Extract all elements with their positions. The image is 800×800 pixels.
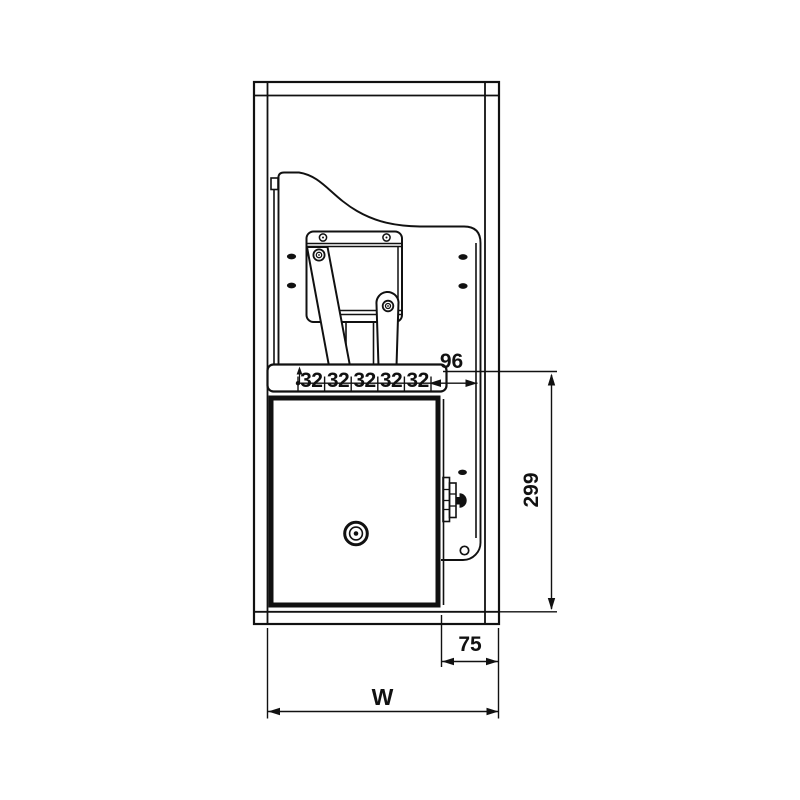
- cabinet-lift-diagram: 32 32 32 32 32 96 299 75 W: [0, 0, 800, 800]
- dim-label-75: 75: [458, 633, 482, 656]
- dim-label-pitch-4: 32: [380, 369, 402, 392]
- front-panel: [271, 398, 444, 605]
- dim-label-pitch-2: 32: [327, 369, 349, 392]
- latch-slot-hole: [458, 470, 467, 475]
- dim-label-width: W: [372, 684, 394, 710]
- dim-label-pitch-5: 32: [406, 369, 428, 392]
- technical-drawing-page: 32 32 32 32 32 96 299 75 W: [0, 0, 800, 800]
- dim-label-96: 96: [440, 350, 463, 373]
- dim-label-299: 299: [520, 472, 543, 507]
- dim-label-pitch-1: 32: [300, 369, 322, 392]
- dim-label-pitch-3: 32: [353, 369, 375, 392]
